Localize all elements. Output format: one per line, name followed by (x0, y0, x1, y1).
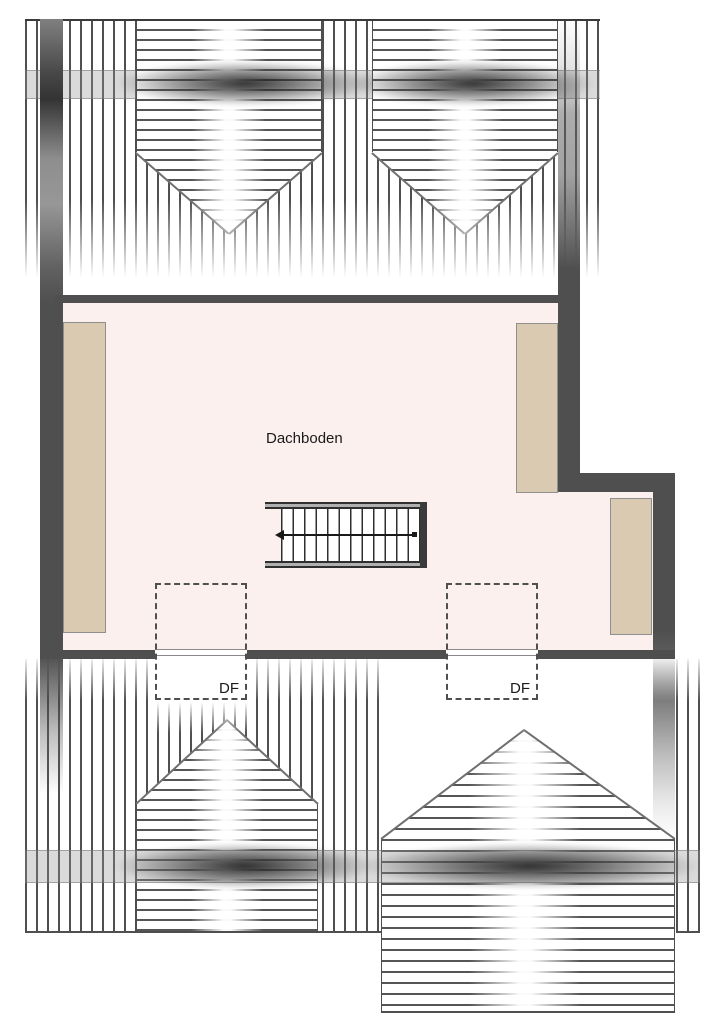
knee-wall-right-upper (516, 323, 558, 493)
wall-step (558, 473, 675, 492)
knee-wall-right-lower (610, 498, 652, 635)
stair-right-cap (420, 502, 427, 568)
wall-bottom (40, 650, 675, 659)
roof-window-right: DF (446, 583, 538, 733)
roof-fade-bottom (25, 659, 700, 701)
roof-window-right-label: DF (510, 681, 530, 696)
roof-window-right-outline: DF (446, 583, 538, 700)
wall-left-band (40, 19, 63, 659)
dormer-bottom-left (136, 719, 318, 933)
roof-window-left-label: DF (219, 681, 239, 696)
wall-right-band-top (558, 19, 580, 303)
stair-stringer-top (265, 502, 427, 509)
wall-top (55, 295, 580, 303)
roof-outline-bottom-right-strip (676, 931, 700, 933)
staircase (265, 502, 427, 568)
stair-stringer-bottom (265, 561, 427, 568)
stair-direction-arrow-icon (275, 530, 284, 540)
roof-outline-bottom-left (25, 931, 381, 933)
room-label: Dachboden (266, 431, 343, 446)
floorplan-canvas: Dachboden DF (0, 0, 724, 1024)
stair-walkline (282, 534, 417, 536)
roof-window-left: DF (155, 583, 247, 733)
ridge-shadow-bottom-left (115, 843, 375, 889)
ridge-shadow-bottom-right (360, 843, 700, 889)
roof-window-right-fade (446, 702, 538, 733)
roof-outline-top-edge (25, 19, 600, 21)
roof-window-left-outline: DF (155, 583, 247, 700)
wall-left-band-lower (40, 659, 63, 794)
roof-window-left-fade (155, 702, 247, 733)
roof-fade-top (25, 200, 600, 295)
wall-right-upper (558, 303, 580, 492)
ridge-shadow-top-left (115, 61, 375, 106)
knee-wall-left (63, 322, 106, 633)
stair-walkline-start-dot (412, 532, 417, 537)
